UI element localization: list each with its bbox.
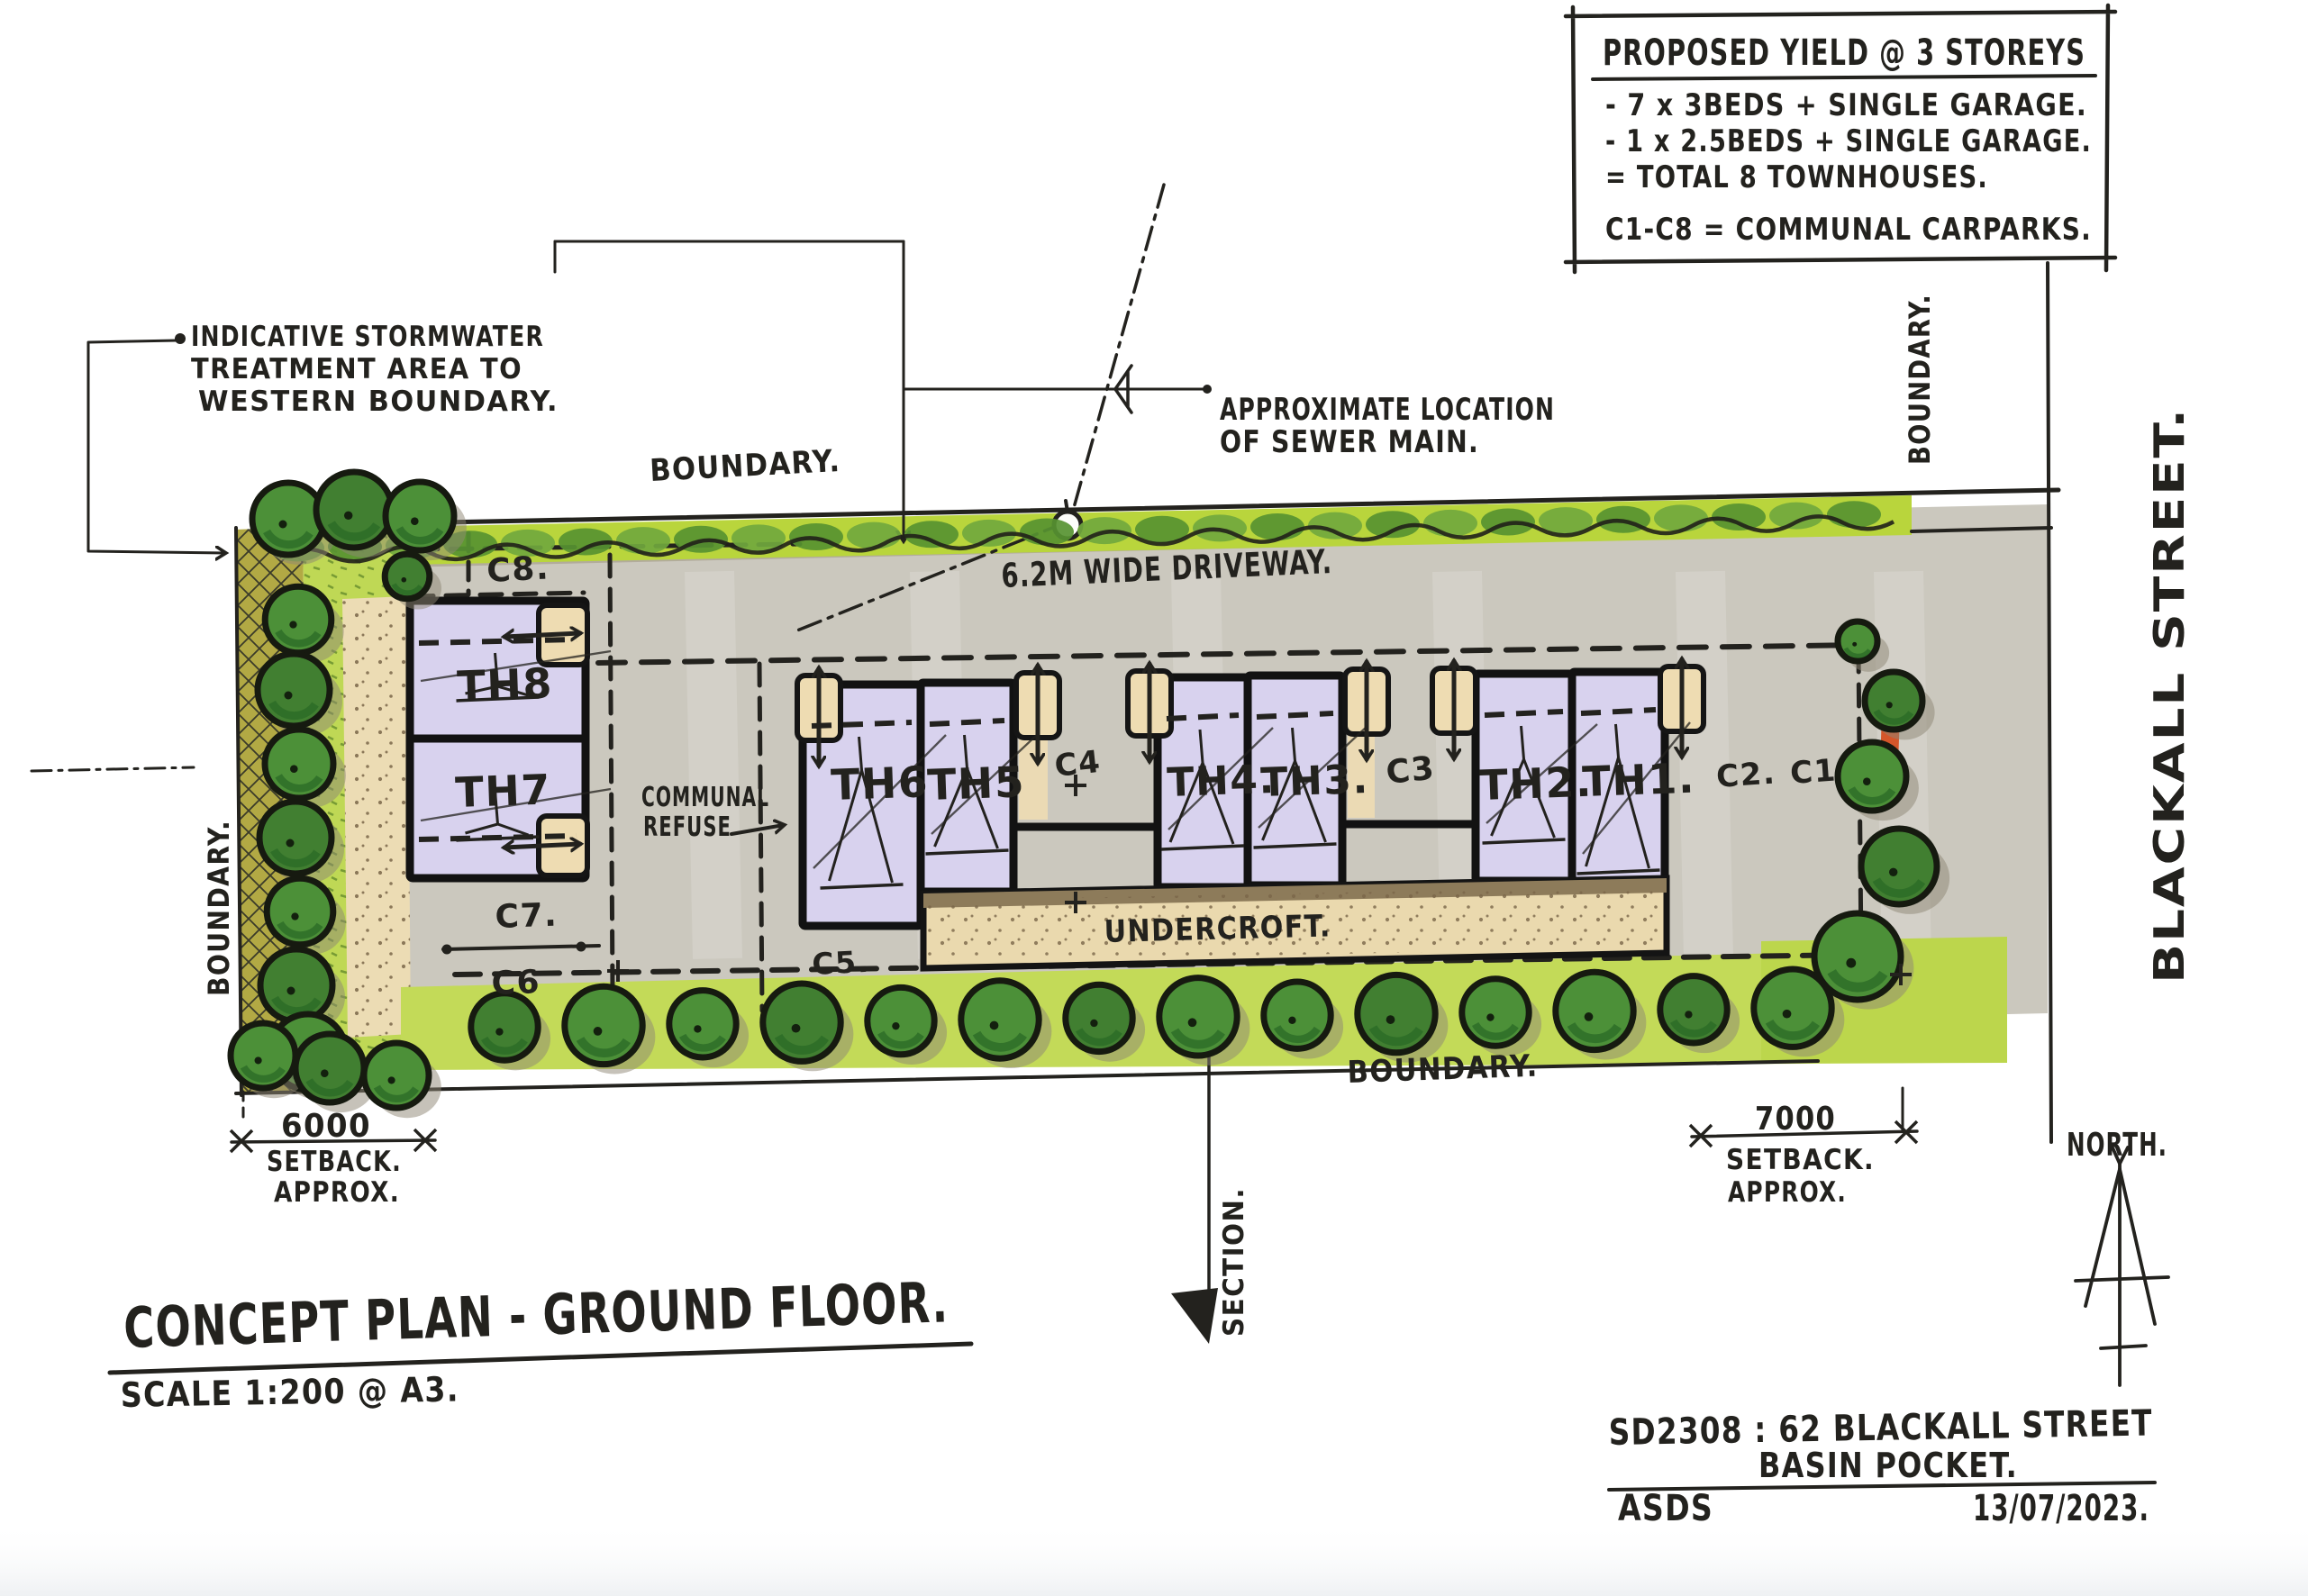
stormwater-note-line3: WESTERN BOUNDARY.: [198, 385, 559, 418]
concept-plan-sheet: PROPOSED YIELD @ 3 STOREYS - 7 x 3BEDS +…: [0, 0, 2308, 1596]
carpark-c5-label: C5.: [811, 944, 870, 982]
carpark-c3-label: C3: [1385, 749, 1437, 791]
th7-label: TH7: [454, 765, 551, 817]
th8-label: TH8: [456, 658, 553, 711]
yield-item-1: - 7 x 3BEDS + SINGLE GARAGE.: [1605, 87, 2087, 123]
project-locality: BASIN POCKET.: [1758, 1446, 2018, 1485]
carpark-c6-label: C6: [491, 964, 541, 1002]
sewer-note-line1: APPROXIMATE LOCATION: [1220, 392, 1555, 428]
yield-item-4: C1-C8 = COMMUNAL CARPARKS.: [1605, 212, 2092, 248]
carpark-c4-label: C4: [1053, 744, 1104, 784]
boundary-label-north: BOUNDARY.: [649, 443, 841, 489]
th5-label: TH5: [926, 757, 1025, 811]
sheet-titles: CONCEPT PLAN - GROUND FLOOR. SCALE 1:200…: [110, 1269, 2155, 1529]
west-setback-value: 6000: [281, 1108, 371, 1145]
boundary-label-west: BOUNDARY.: [202, 820, 236, 996]
bo undary-label-east: BOUNDARY.: [1903, 294, 1937, 465]
sewer-note-line2: OF SEWER MAIN.: [1220, 424, 1479, 460]
communal-refuse-line1: COMMUNAL: [641, 782, 769, 813]
scan-shadow: [0, 1522, 2308, 1596]
drawing-scale: SCALE 1:200 @ A3.: [120, 1369, 459, 1415]
carpark-c8-label: C8.: [486, 549, 550, 590]
carpark-c2-label: C2.: [1715, 755, 1777, 795]
section-label: SECTION.: [1218, 1187, 1250, 1337]
yield-title: PROPOSED YIELD @ 3 STOREYS: [1603, 32, 2085, 74]
c7-dim-dot-a: [442, 945, 452, 955]
dashed-line-court-east: [759, 664, 762, 1011]
c7-dim-dot-b: [577, 942, 586, 952]
communal-refuse-line2: REFUSE: [643, 812, 731, 843]
stormwater-leader-dot: [175, 333, 186, 344]
boundary-label-south: BOUNDARY.: [1347, 1048, 1539, 1091]
site-plan-drawing: PROPOSED YIELD @ 3 STOREYS - 7 x 3BEDS +…: [0, 0, 2308, 1596]
west-offset-dashed: [32, 767, 194, 771]
carpark-c1-label: C1: [1789, 752, 1838, 792]
sewer-manhole-tick: [1066, 501, 1068, 512]
north-label: NORTH.: [2067, 1127, 2167, 1164]
north-arrow: [2076, 1146, 2168, 1385]
yield-item-3: = TOTAL 8 TOWNHOUSES.: [1605, 159, 1988, 195]
east-setback-qualifier: APPROX.: [1728, 1176, 1847, 1209]
stormwater-path-dots: [342, 596, 411, 1038]
th3-label: TH3.: [1260, 757, 1370, 806]
carpark-c7-label: C7.: [495, 897, 559, 936]
west-setback-qualifier: APPROX.: [274, 1176, 400, 1209]
section-arrowhead: [1171, 1288, 1218, 1344]
street-name-label: BLACKALL STREET.: [2145, 407, 2194, 984]
stormwater-note-line1: INDICATIVE STORMWATER: [191, 321, 544, 353]
stormwater-note-line2: TREATMENT AREA TO: [191, 353, 522, 385]
west-setback-label: SETBACK.: [267, 1146, 402, 1178]
street-frontage-line: [2048, 263, 2051, 1142]
east-setback-label: SETBACK.: [1726, 1144, 1875, 1176]
th6-label: TH6: [830, 757, 929, 811]
th1-label: TH1.: [1581, 754, 1695, 806]
th2-label: TH2.: [1478, 757, 1593, 810]
sewer-leader-dot: [1203, 385, 1212, 394]
yield-item-2: - 1 x 2.5BEDS + SINGLE GARAGE.: [1605, 123, 2092, 159]
undercroft-label: UNDERCROFT.: [1104, 908, 1331, 950]
east-setback-value: 7000: [1755, 1101, 1836, 1138]
setback-dimension-labels: 6000 SETBACK. APPROX. 7000 SETBACK. APPR…: [267, 1101, 1875, 1209]
yield-box: PROPOSED YIELD @ 3 STOREYS - 7 x 3BEDS +…: [1566, 5, 2115, 272]
yield-title-underline: [1593, 76, 2095, 79]
